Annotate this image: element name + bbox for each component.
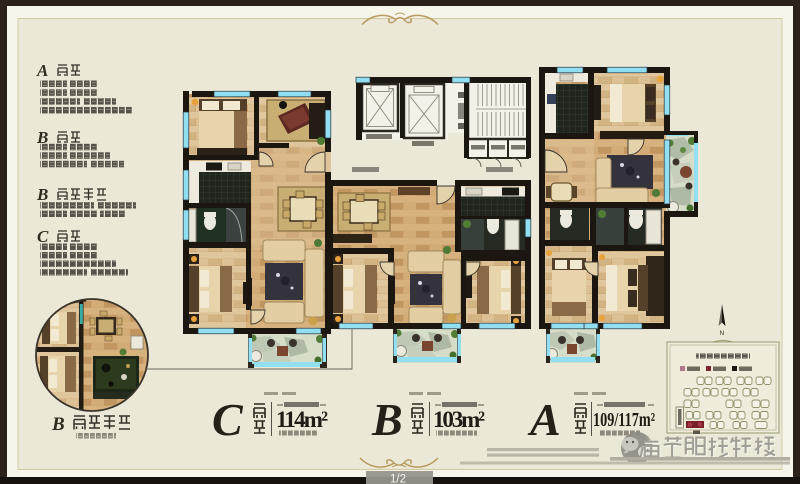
svg-text:114m²: 114m²: [276, 407, 328, 432]
svg-text:C: C: [37, 227, 49, 246]
svg-text:A: A: [36, 61, 48, 80]
svg-text:A: A: [527, 394, 561, 445]
svg-text:B: B: [51, 414, 65, 435]
svg-text:N: N: [720, 330, 725, 337]
svg-text:103m²: 103m²: [433, 407, 485, 432]
svg-text:B: B: [371, 394, 403, 445]
svg-text:1/2: 1/2: [390, 474, 406, 484]
svg-text:109/117m²: 109/117m²: [593, 409, 655, 431]
svg-text:B: B: [36, 185, 48, 204]
svg-text:C: C: [212, 394, 244, 445]
